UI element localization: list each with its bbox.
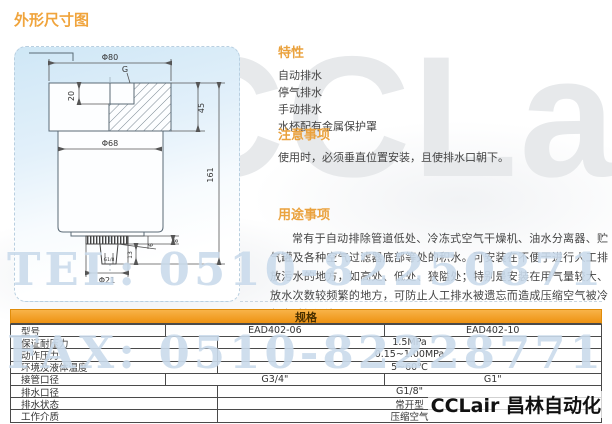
spec-value: EAD402-10 xyxy=(384,325,601,336)
dim-13: 13 xyxy=(127,251,134,259)
dim-stem-thread: G1/8 xyxy=(104,257,115,263)
spec-label: 接管口径 xyxy=(11,374,166,385)
features-section: 特性 自动排水 停气排水 手动排水 水杯配有金属保护罩 xyxy=(278,42,377,135)
table-row: 接管口径 G3/4" G1" xyxy=(11,373,601,385)
dim-phi21: Φ21 xyxy=(99,276,115,285)
spec-label: 排水口径 xyxy=(11,386,218,397)
dim-6: 6 xyxy=(148,243,155,247)
dimension-drawing-panel: Φ80 G 20 45 161 Φ68 8 6 13 G1/8 Φ21 xyxy=(14,46,240,302)
notes-text: 使用时，必须垂直位置安装，且使排水口朝下。 xyxy=(278,149,509,166)
spec-value: 5~60℃ xyxy=(218,362,601,373)
spec-label: 动作压力 xyxy=(11,349,218,360)
table-row: 型号 EAD402-06 EAD402-10 xyxy=(11,324,601,336)
spec-label: 环境及液体温度 xyxy=(11,362,218,373)
table-row: 保证耐压力 1.5MPa xyxy=(11,336,601,348)
usage-section: 用途事项 常有于自动排除管道低处、冷冻式空气干燥机、油水分离器、贮气罐及各种空气… xyxy=(270,204,608,324)
spec-value: 1.5MPa xyxy=(218,337,601,348)
spec-label: 排水状态 xyxy=(11,398,218,409)
dim-phi68: Φ68 xyxy=(102,139,118,148)
dim-161: 161 xyxy=(206,167,215,182)
dim-20: 20 xyxy=(67,91,76,101)
notes-section: 注意事项 使用时，必须垂直位置安装，且使排水口朝下。 xyxy=(278,124,509,166)
feature-item: 停气排水 xyxy=(278,84,377,101)
dim-g: G xyxy=(122,65,128,74)
dim-45: 45 xyxy=(197,103,206,113)
dim-8: 8 xyxy=(173,239,180,243)
bracket-line xyxy=(29,53,73,61)
spec-table-title: 规格 xyxy=(10,309,602,324)
features-title: 特性 xyxy=(278,42,377,61)
spec-value: G3/4" xyxy=(166,374,383,385)
usage-title: 用途事项 xyxy=(278,204,608,223)
spec-value: G1" xyxy=(384,374,601,385)
spec-label: 保证耐压力 xyxy=(11,337,218,348)
table-row: 环境及液体温度 5~60℃ xyxy=(11,361,601,373)
notes-title: 注意事项 xyxy=(278,124,509,143)
dim-phi80: Φ80 xyxy=(102,53,118,62)
spec-label: 型号 xyxy=(11,325,166,336)
spec-value: EAD402-06 xyxy=(166,325,383,336)
page-title: 外形尺寸图 xyxy=(14,9,89,30)
feature-item: 自动排水 xyxy=(278,67,377,84)
spec-value: 0.15~1.00MPa xyxy=(218,349,601,360)
company-logo: CCLair 昌林自动化 xyxy=(428,391,604,418)
spec-label: 工作介质 xyxy=(11,410,218,421)
table-row: 动作压力 0.15~1.00MPa xyxy=(11,348,601,360)
datasheet-page: CCLair 外形尺寸图 xyxy=(0,0,612,424)
feature-item: 手动排水 xyxy=(278,101,377,118)
dimension-drawing: Φ80 G 20 45 161 Φ68 8 6 13 G1/8 Φ21 xyxy=(15,47,239,301)
